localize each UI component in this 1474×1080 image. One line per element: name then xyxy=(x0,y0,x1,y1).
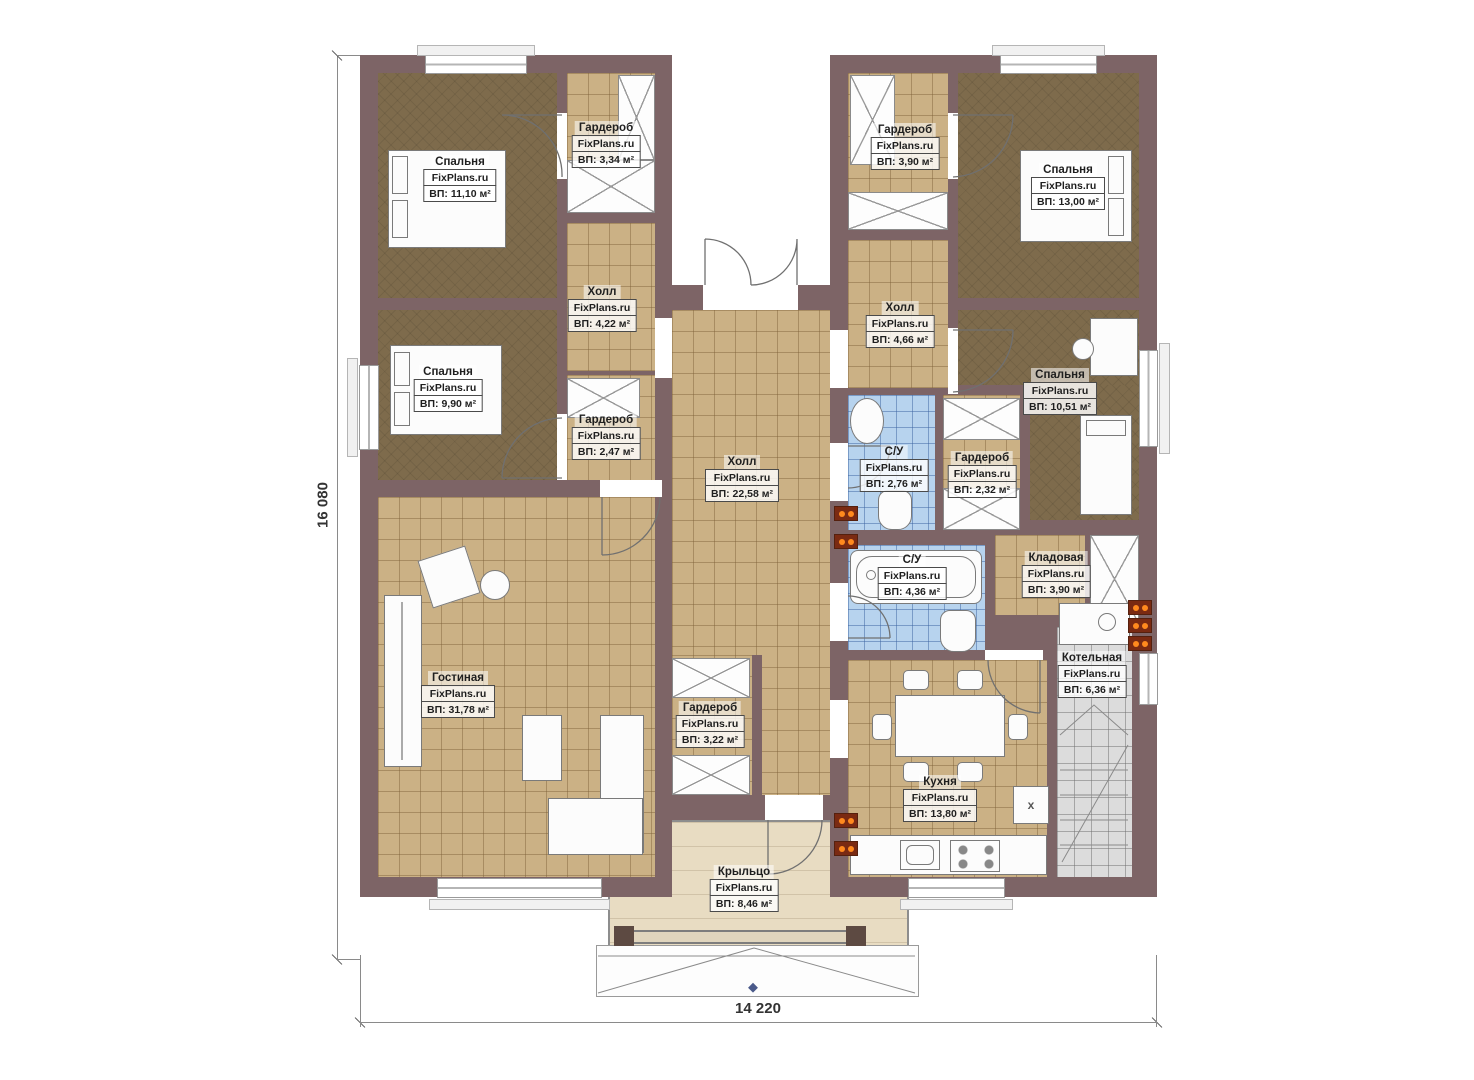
watermark: FixPlans.ru xyxy=(878,567,947,584)
watermark: FixPlans.ru xyxy=(871,137,940,154)
room-label-bedroom-mr: Спальня FixPlans.ru ВП: 10,51 м² xyxy=(1023,365,1097,415)
watermark: FixPlans.ru xyxy=(1022,565,1091,582)
watermark: FixPlans.ru xyxy=(572,427,641,444)
stove-icon xyxy=(950,840,1000,872)
toilet-icon xyxy=(940,610,976,652)
dimension-height-label: 16 080 xyxy=(315,482,332,528)
room-label-bedroom-ml: Спальня FixPlans.ru ВП: 9,90 м² xyxy=(414,362,483,412)
room-label-porch: Крыльцо FixPlans.ru ВП: 8,46 м² xyxy=(710,862,779,912)
window xyxy=(437,878,602,898)
door-opening xyxy=(600,480,662,497)
watermark: FixPlans.ru xyxy=(423,169,496,186)
window xyxy=(1139,653,1158,705)
room-name: Гардероб xyxy=(874,123,936,137)
room-name: Спальня xyxy=(1031,368,1089,382)
watermark: FixPlans.ru xyxy=(860,459,929,476)
boiler-burner-icon xyxy=(1098,613,1116,631)
room-label-bathroom-small: С/У FixPlans.ru ВП: 2,76 м² xyxy=(860,442,929,492)
door-opening xyxy=(830,443,848,501)
room-label-hall-right: Холл FixPlans.ru ВП: 4,66 м² xyxy=(866,298,935,348)
room-name: Котельная xyxy=(1058,651,1126,665)
wardrobe-x-icon xyxy=(848,192,948,230)
room-area: ВП: 3,34 м² xyxy=(572,151,641,168)
watermark: FixPlans.ru xyxy=(903,789,977,806)
radiator-icon xyxy=(834,506,858,521)
porch-post xyxy=(614,926,634,946)
round-table-icon xyxy=(480,570,510,600)
room-area: ВП: 13,00 м² xyxy=(1031,193,1105,210)
chair-icon xyxy=(903,670,929,690)
watermark: FixPlans.ru xyxy=(866,315,935,332)
room-area: ВП: 3,90 м² xyxy=(1022,581,1091,598)
window-sill xyxy=(1159,343,1170,454)
door-opening xyxy=(557,414,567,480)
kitchen-counter xyxy=(850,835,1047,875)
room-area: ВП: 22,58 м² xyxy=(705,485,779,502)
porch-post xyxy=(846,926,866,946)
room-name: Холл xyxy=(882,301,919,315)
radiator-icon xyxy=(834,534,858,549)
window xyxy=(359,365,379,450)
room-label-wardrobe-tr: Гардероб FixPlans.ru ВП: 3,90 м² xyxy=(871,120,940,170)
porch-railing xyxy=(634,930,846,944)
window-sill xyxy=(429,899,610,910)
sink-icon xyxy=(850,398,884,444)
room-area: ВП: 6,36 м² xyxy=(1058,681,1127,698)
sofa-icon xyxy=(548,798,643,855)
porch-steps xyxy=(596,945,919,997)
fridge-mark: x xyxy=(1028,798,1035,812)
room-label-kitchen: Кухня FixPlans.ru ВП: 13,80 м² xyxy=(903,772,977,822)
room-area: ВП: 2,32 м² xyxy=(948,481,1017,498)
dimension-line-horizontal xyxy=(360,1022,1157,1023)
pillow-icon xyxy=(394,352,410,386)
room-area: ВП: 2,76 м² xyxy=(860,475,929,492)
dimension-extension xyxy=(337,959,360,960)
room-label-wardrobe-mr: Гардероб FixPlans.ru ВП: 2,32 м² xyxy=(948,448,1017,498)
chair-icon xyxy=(1008,714,1028,740)
room-label-storage: Кладовая FixPlans.ru ВП: 3,90 м² xyxy=(1022,548,1091,598)
room-area: ВП: 3,90 м² xyxy=(871,153,940,170)
room-label-wardrobe-center: Гардероб FixPlans.ru ВП: 3,22 м² xyxy=(676,698,745,748)
entry-door-opening xyxy=(703,285,798,310)
door-opening xyxy=(985,650,1043,660)
room-name: Спальня xyxy=(419,365,477,379)
dimension-line-vertical xyxy=(337,55,338,960)
porch-door-opening xyxy=(765,795,823,820)
room-name: Спальня xyxy=(1039,163,1097,177)
chair-icon xyxy=(1072,338,1094,360)
room-area: ВП: 4,36 м² xyxy=(878,583,947,600)
room-name: Холл xyxy=(584,285,621,299)
door-opening xyxy=(830,583,848,641)
door-opening xyxy=(830,330,848,388)
room-name: Спальня xyxy=(431,155,489,169)
room-name: Кухня xyxy=(919,775,961,789)
window xyxy=(1000,55,1097,74)
door-opening xyxy=(557,113,567,179)
pillow-icon xyxy=(392,200,408,238)
room-name: Гостиная xyxy=(428,671,488,685)
watermark: FixPlans.ru xyxy=(705,469,779,486)
window-sill xyxy=(417,45,535,56)
room-area: ВП: 4,22 м² xyxy=(568,315,637,332)
dimension-width-label: 14 220 xyxy=(735,1000,781,1017)
pillow-icon xyxy=(1108,198,1124,236)
door-opening xyxy=(655,318,672,378)
room-label-hall-main: Холл FixPlans.ru ВП: 22,58 м² xyxy=(705,452,779,502)
watermark: FixPlans.ru xyxy=(948,465,1017,482)
dimension-extension xyxy=(360,955,361,1027)
watermark: FixPlans.ru xyxy=(421,685,495,702)
pillow-icon xyxy=(392,156,408,194)
chair-icon xyxy=(957,670,983,690)
watermark: FixPlans.ru xyxy=(710,879,779,896)
piano-detail xyxy=(401,602,403,760)
watermark: FixPlans.ru xyxy=(1058,665,1127,682)
watermark: FixPlans.ru xyxy=(414,379,483,396)
room-area: ВП: 8,46 м² xyxy=(710,895,779,912)
room-area: ВП: 2,47 м² xyxy=(572,443,641,460)
desk-icon xyxy=(1090,318,1138,376)
window-sill xyxy=(992,45,1105,56)
window-sill xyxy=(900,899,1013,910)
fridge-icon: x xyxy=(1013,786,1049,824)
chair-icon xyxy=(872,714,892,740)
wardrobe-x-icon xyxy=(943,398,1020,440)
room-area: ВП: 13,80 м² xyxy=(903,805,977,822)
radiator-icon xyxy=(834,813,858,828)
room-label-living: Гостиная FixPlans.ru ВП: 31,78 м² xyxy=(421,668,495,718)
dimension-extension xyxy=(1156,955,1157,1027)
dimension-extension xyxy=(337,55,360,56)
piano-icon xyxy=(384,595,422,767)
watermark: FixPlans.ru xyxy=(1023,382,1097,399)
room-label-hall-left: Холл FixPlans.ru ВП: 4,22 м² xyxy=(568,282,637,332)
room-label-bedroom-tr: Спальня FixPlans.ru ВП: 13,00 м² xyxy=(1031,160,1105,210)
room-area: ВП: 3,22 м² xyxy=(676,731,745,748)
room-area: ВП: 31,78 м² xyxy=(421,701,495,718)
room-name: Холл xyxy=(724,455,761,469)
window-sill xyxy=(347,358,358,457)
room-name: С/У xyxy=(881,445,908,459)
door-opening xyxy=(830,700,848,758)
room-name: Крыльцо xyxy=(714,865,774,879)
room-label-wardrobe-ml: Гардероб FixPlans.ru ВП: 2,47 м² xyxy=(572,410,641,460)
room-name: Кладовая xyxy=(1024,551,1087,565)
watermark: FixPlans.ru xyxy=(1031,177,1105,194)
wardrobe-x-icon xyxy=(672,658,750,698)
toilet-icon xyxy=(878,490,912,530)
room-label-wardrobe-tl: Гардероб FixPlans.ru ВП: 3,34 м² xyxy=(572,118,641,168)
window xyxy=(1139,350,1158,447)
door-opening xyxy=(948,328,958,394)
room-label-bedroom-tl: Спальня FixPlans.ru ВП: 11,10 м² xyxy=(423,152,496,202)
room-area: ВП: 9,90 м² xyxy=(414,395,483,412)
door-opening xyxy=(948,113,958,179)
radiator-icon xyxy=(834,841,858,856)
watermark: FixPlans.ru xyxy=(676,715,745,732)
radiator-icon xyxy=(1128,618,1152,633)
wall-partition xyxy=(752,655,762,795)
watermark: FixPlans.ru xyxy=(568,299,637,316)
floor-plan-canvas: x xyxy=(0,0,1474,1080)
room-area: ВП: 10,51 м² xyxy=(1023,398,1097,415)
window xyxy=(425,55,527,74)
pillow-icon xyxy=(394,392,410,426)
coffee-table-icon xyxy=(522,715,562,781)
room-name: С/У xyxy=(899,553,926,567)
pillow-icon xyxy=(1108,156,1124,194)
room-area: ВП: 11,10 м² xyxy=(423,185,496,202)
boiler-appliance xyxy=(1059,603,1130,645)
bathtub-drain xyxy=(866,570,876,580)
room-area: ВП: 4,66 м² xyxy=(866,331,935,348)
room-name: Гардероб xyxy=(951,451,1013,465)
dining-table-icon xyxy=(895,695,1005,757)
radiator-icon xyxy=(1128,600,1152,615)
room-label-boiler: Котельная FixPlans.ru ВП: 6,36 м² xyxy=(1058,648,1127,698)
room-name: Гардероб xyxy=(679,701,741,715)
window xyxy=(908,878,1005,898)
room-name: Гардероб xyxy=(575,413,637,427)
radiator-icon xyxy=(1128,636,1152,651)
wardrobe-x-icon xyxy=(672,755,750,795)
watermark: FixPlans.ru xyxy=(572,135,641,152)
room-name: Гардероб xyxy=(575,121,637,135)
sink-basin xyxy=(906,845,934,865)
pillow-icon xyxy=(1086,420,1126,436)
room-label-bathroom-big: С/У FixPlans.ru ВП: 4,36 м² xyxy=(878,550,947,600)
